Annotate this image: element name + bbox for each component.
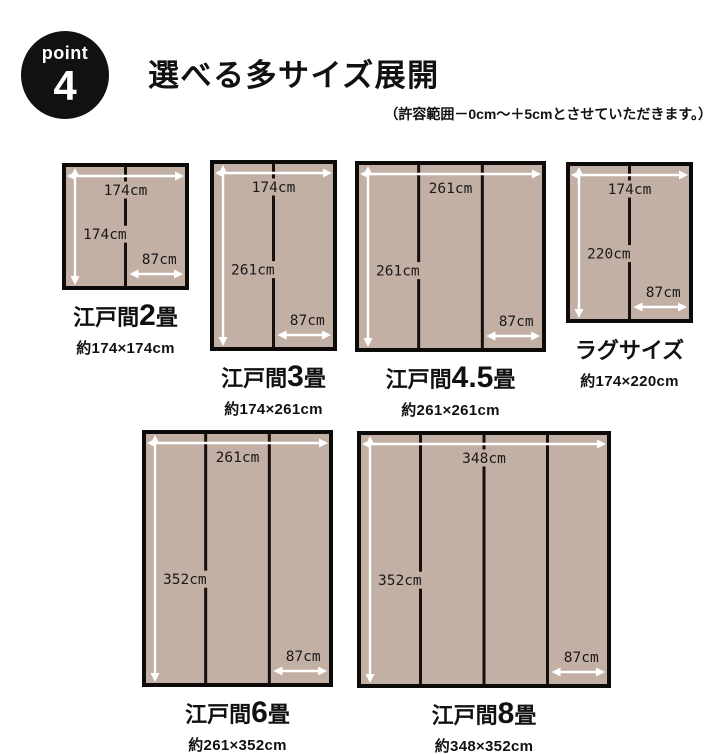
mat-name: ラグサイズ [575, 334, 684, 369]
svg-text:87cm: 87cm [142, 252, 177, 268]
svg-text:352cm: 352cm [163, 572, 207, 588]
svg-text:261cm: 261cm [429, 181, 473, 197]
svg-text:174cm: 174cm [608, 182, 652, 198]
svg-text:87cm: 87cm [290, 313, 325, 329]
mat-name: 江戸間3畳 [221, 362, 326, 397]
svg-text:87cm: 87cm [564, 650, 599, 666]
size-diagram-edoma-6jo: 261cm352cm87cm 江戸間6畳 約261×352cm [142, 430, 333, 754]
page-title: 選べる多サイズ展開 [148, 50, 440, 95]
mat-approx-size: 約261×261cm [401, 399, 500, 420]
mat-approx-size: 約348×352cm [435, 735, 534, 754]
svg-text:87cm: 87cm [646, 285, 681, 301]
svg-text:348cm: 348cm [462, 451, 506, 467]
svg-text:220cm: 220cm [587, 247, 631, 263]
svg-text:87cm: 87cm [499, 314, 534, 330]
size-diagram-edoma-4-5jo: 261cm261cm87cm 江戸間4.5畳 約261×261cm [355, 161, 546, 420]
mat-approx-size: 約174×261cm [224, 398, 323, 419]
mat-figure: 348cm352cm87cm [357, 431, 611, 688]
size-diagram-rug: 174cm220cm87cm ラグサイズ 約174×220cm [566, 162, 693, 391]
svg-text:174cm: 174cm [83, 227, 127, 243]
tolerance-note: （許容範囲－0cm～＋5cmとさせていただきます。） [384, 104, 712, 124]
svg-text:174cm: 174cm [104, 183, 148, 199]
mat-name: 江戸間4.5畳 [386, 363, 516, 398]
svg-text:352cm: 352cm [378, 573, 422, 589]
point-badge-label: point [42, 44, 88, 62]
mat-figure: 174cm261cm87cm [210, 160, 337, 351]
point-badge: point 4 [21, 31, 109, 119]
mat-figure: 174cm174cm87cm [62, 163, 189, 290]
mat-name: 江戸間8畳 [432, 699, 537, 734]
size-lineup-panel: point 4 選べる多サイズ展開 （許容範囲－0cm～＋5cmとさせていただき… [0, 0, 720, 754]
svg-text:174cm: 174cm [252, 180, 296, 196]
svg-text:261cm: 261cm [216, 450, 260, 466]
mat-approx-size: 約261×352cm [188, 734, 287, 754]
mat-name: 江戸間2畳 [73, 301, 178, 336]
svg-text:261cm: 261cm [376, 264, 420, 280]
point-badge-number: 4 [53, 65, 76, 107]
mat-figure: 261cm352cm87cm [142, 430, 333, 687]
svg-text:87cm: 87cm [286, 649, 321, 665]
mat-name: 江戸間6畳 [185, 698, 290, 733]
mat-figure: 261cm261cm87cm [355, 161, 546, 352]
mat-figure: 174cm220cm87cm [566, 162, 693, 323]
svg-text:261cm: 261cm [231, 263, 275, 279]
mat-approx-size: 約174×174cm [76, 337, 175, 358]
mat-approx-size: 約174×220cm [580, 370, 679, 391]
size-diagram-edoma-2jo: 174cm174cm87cm 江戸間2畳 約174×174cm [62, 163, 189, 358]
size-diagram-edoma-8jo: 348cm352cm87cm 江戸間8畳 約348×352cm [357, 431, 611, 754]
size-diagram-edoma-3jo: 174cm261cm87cm 江戸間3畳 約174×261cm [210, 160, 337, 419]
